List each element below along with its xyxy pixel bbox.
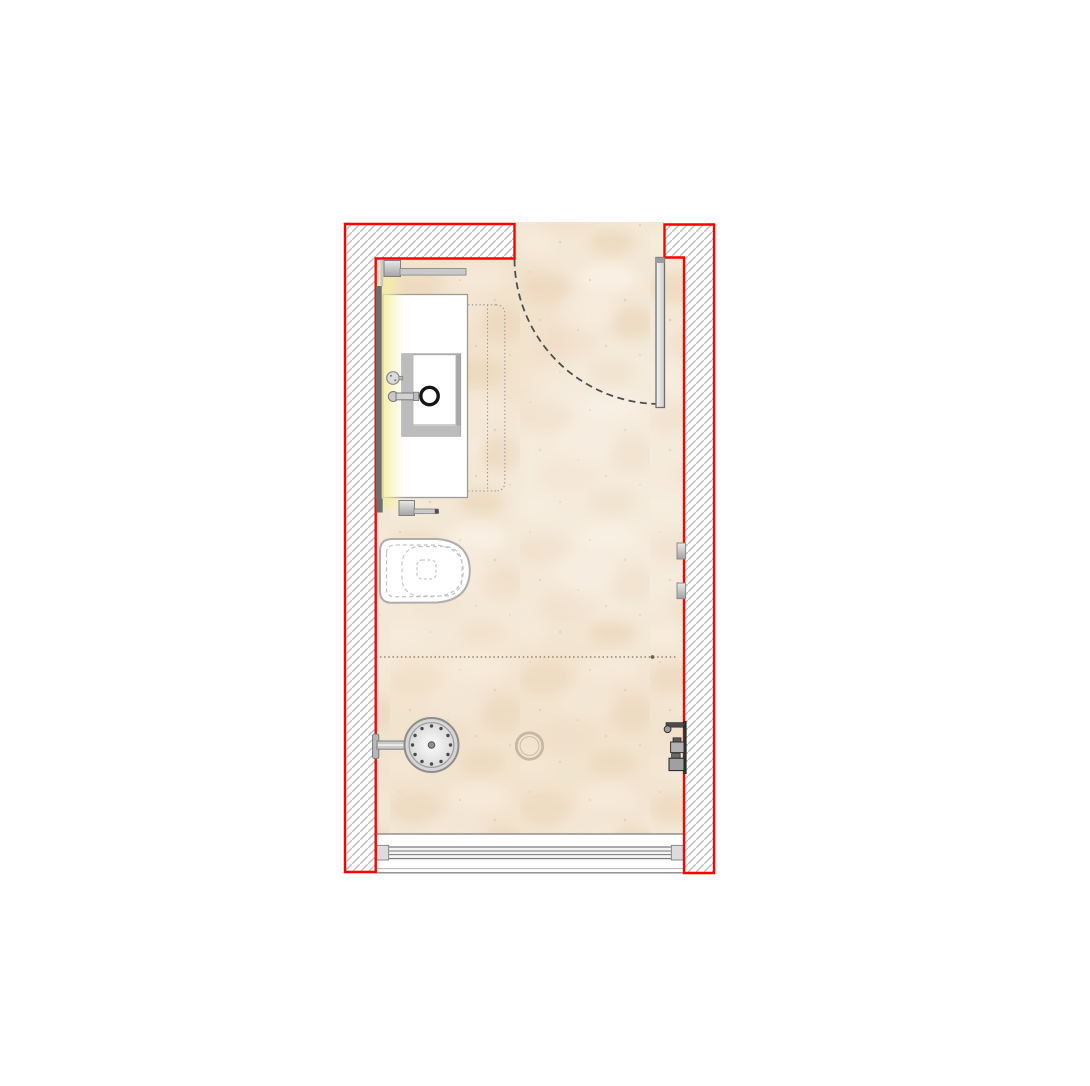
spout-tip [414,392,419,400]
mirror-mount-upper [381,260,384,287]
handle-detail-dot [390,375,392,377]
mirror-mount-lower [376,499,382,513]
door-hinge-cap [656,258,665,264]
handle-stub [399,376,403,380]
mixer-valve-upper-body [671,742,684,753]
rail-bar [414,509,438,514]
rail-end-knob [435,509,439,513]
basin-drain-ring [421,387,438,404]
boundary-marker-dot [651,655,655,659]
basin-wall-right [456,354,461,436]
panel-bracket-lower [677,583,686,599]
handle-detail-dot [394,379,396,381]
faucet-handle [387,372,400,385]
track-end-cap-left [377,845,389,860]
mirror-backlight-glow [381,268,405,508]
rail-mount-block [399,501,415,516]
hand-shower-knob [664,726,671,733]
mixer-valve-lower-body [669,758,684,770]
floor-plan-page [0,0,1090,1086]
sliding-door-track [388,847,672,859]
floor-plan-canvas [0,0,1090,1086]
basin-wall-bottom [402,426,461,437]
rail-bar [400,269,466,276]
toilet-body [380,539,470,603]
shower-head-hub [428,742,435,749]
entry-threshold [376,834,684,873]
wall-mirror [376,286,382,499]
wall-hung-toilet [380,539,470,603]
entry-door-leaf [656,258,665,408]
rail-mount-block [384,261,401,277]
track-end-cap-right [671,845,683,860]
panel-bracket-upper [677,543,686,559]
